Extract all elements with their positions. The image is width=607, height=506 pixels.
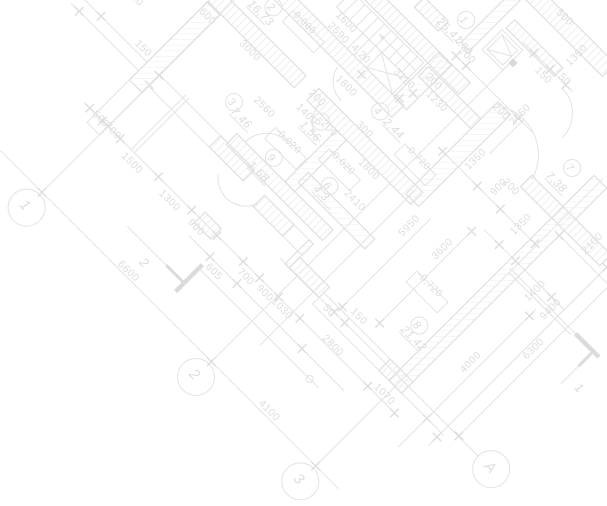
svg-text:2600: 2600 — [120, 0, 146, 9]
svg-text:1: 1 — [571, 380, 587, 396]
svg-text:3600: 3600 — [429, 236, 455, 262]
svg-text:7,46: 7,46 — [228, 106, 254, 132]
svg-text:605: 605 — [203, 261, 225, 283]
svg-text:1500: 1500 — [119, 150, 145, 176]
svg-text:6300: 6300 — [520, 336, 546, 362]
svg-text:2560: 2560 — [251, 94, 277, 120]
svg-text:150: 150 — [132, 37, 154, 59]
svg-text:1030: 1030 — [269, 296, 295, 322]
svg-text:2: 2 — [185, 365, 204, 384]
svg-text:5950: 5950 — [396, 213, 422, 239]
svg-text:A: A — [480, 457, 500, 477]
svg-text:1: 1 — [16, 196, 34, 214]
svg-text:-0,720: -0,720 — [402, 143, 432, 173]
svg-text:6600: 6600 — [115, 258, 141, 284]
svg-text:1300: 1300 — [156, 187, 182, 213]
svg-text:-0,020: -0,020 — [273, 126, 303, 156]
svg-text:-0,720: -0,720 — [414, 270, 444, 300]
svg-text:50: 50 — [556, 71, 573, 88]
svg-text:-0,020: -0,020 — [327, 148, 357, 178]
svg-text:2800: 2800 — [320, 332, 346, 358]
svg-text:4000: 4000 — [457, 349, 483, 375]
svg-text:1400: 1400 — [522, 278, 548, 304]
svg-text:3: 3 — [290, 470, 308, 488]
svg-text:1350: 1350 — [508, 211, 534, 237]
svg-text:2: 2 — [136, 254, 153, 271]
svg-text:150: 150 — [348, 305, 370, 327]
